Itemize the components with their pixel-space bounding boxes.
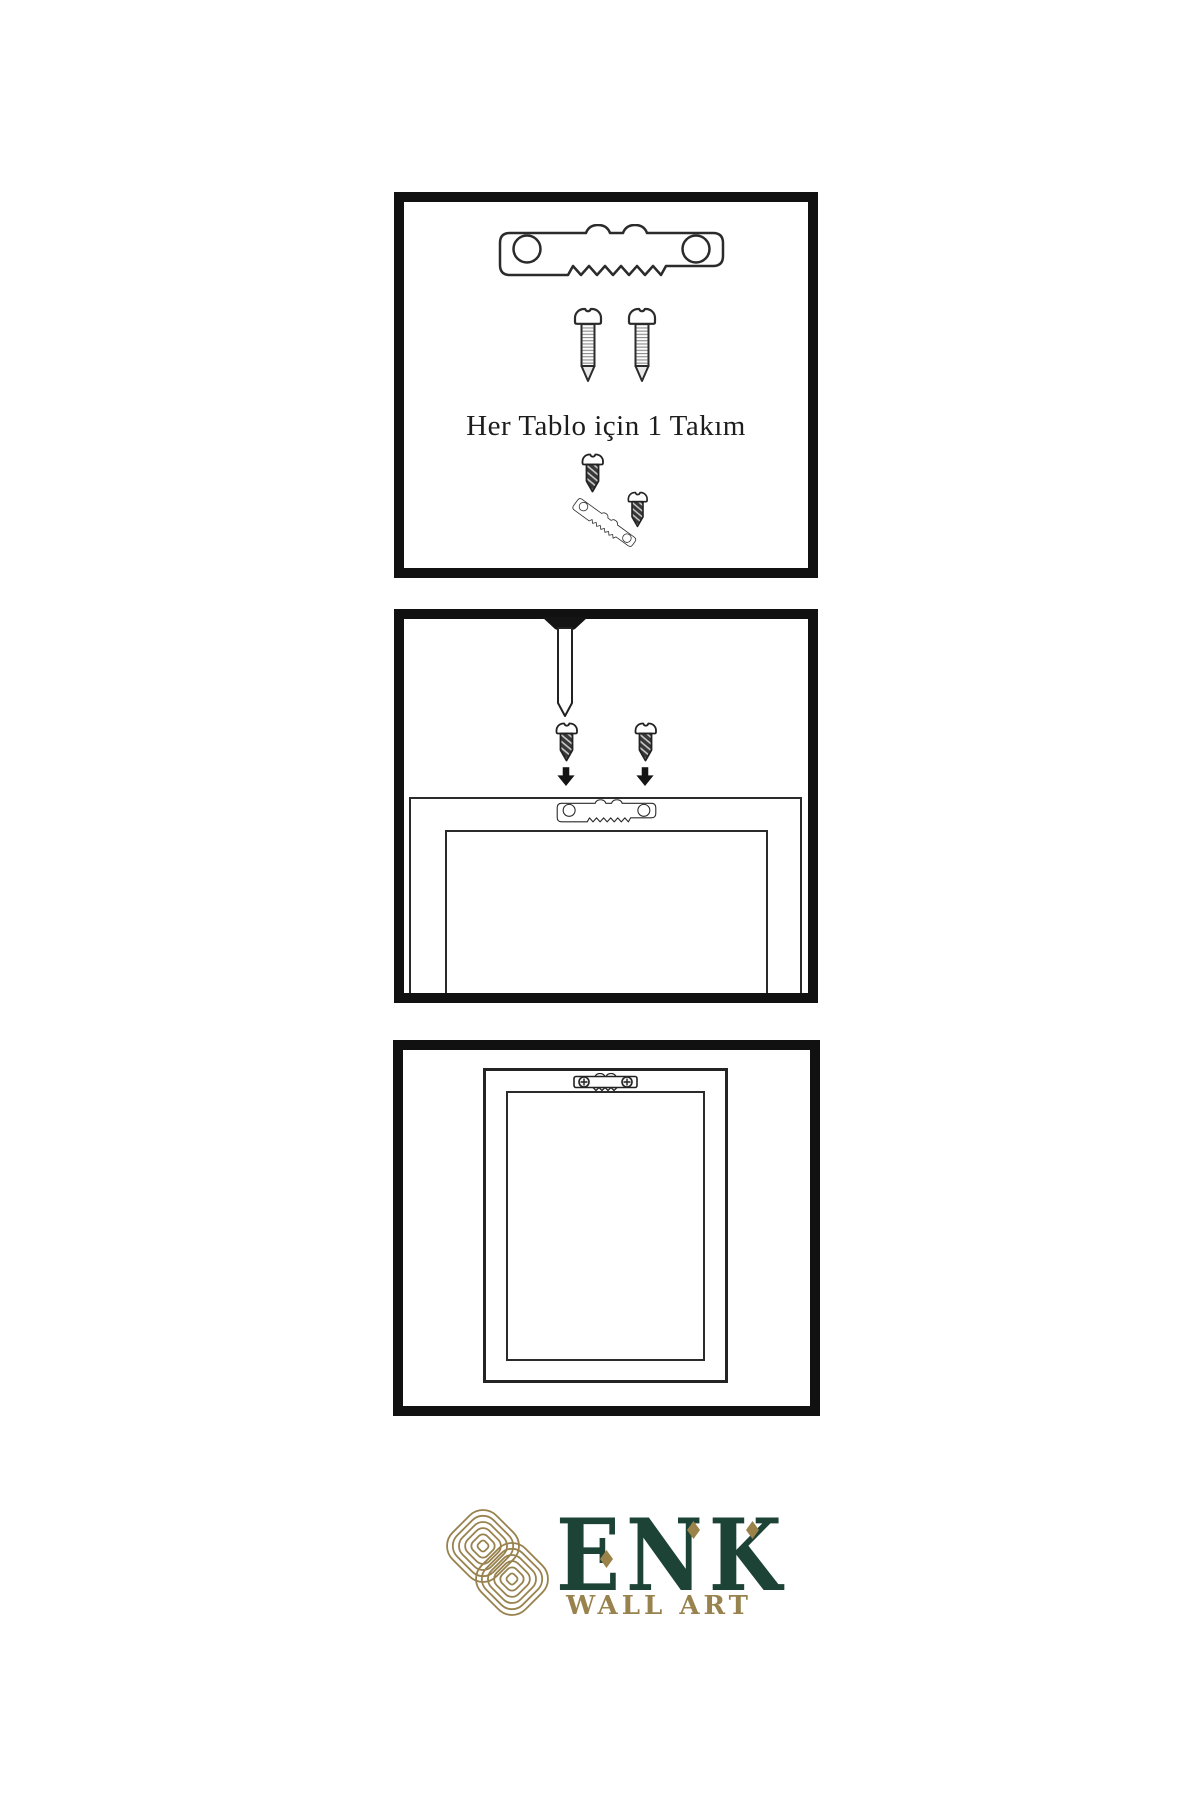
screw-icon xyxy=(555,722,578,762)
screw-icon xyxy=(634,722,657,762)
panel-hang-frame xyxy=(393,1040,820,1416)
sawtooth-hanger-icon xyxy=(495,224,728,277)
knot-logo-icon xyxy=(437,1497,558,1628)
kit-caption: Her Tablo için 1 Takım xyxy=(404,410,808,443)
screw-icon xyxy=(627,305,657,383)
frame-front-inner-edge xyxy=(506,1091,705,1361)
panel-attach-hanger xyxy=(394,609,818,1003)
brand-subtitle: WALL ART xyxy=(566,1591,752,1621)
instruction-sheet: Her Tablo için 1 Takım xyxy=(0,0,1200,1800)
panel-hardware-kit: Her Tablo için 1 Takım xyxy=(394,192,818,578)
down-arrow-icon xyxy=(636,767,654,787)
wall-nail-icon xyxy=(542,617,588,717)
frame-back-inner-edge xyxy=(445,830,768,993)
screw-icon xyxy=(573,305,603,383)
installed-hanger-icon xyxy=(573,1073,638,1091)
screw-into-hanger-icon xyxy=(545,445,660,560)
down-arrow-icon xyxy=(557,767,575,787)
sawtooth-hanger-on-frame-icon xyxy=(555,799,658,823)
